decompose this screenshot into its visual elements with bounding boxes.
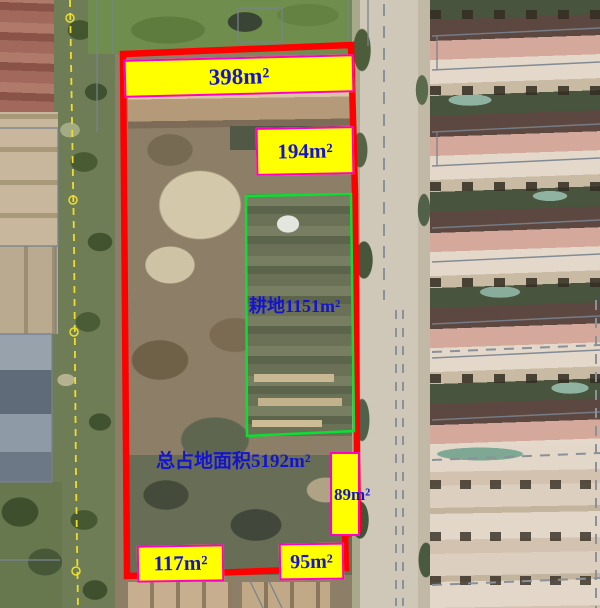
area-label-top-text: 398m² [208, 64, 269, 88]
area-label-upper-right: 194m² [256, 126, 355, 176]
road-dashed-lines [384, 4, 600, 608]
aerial-map-canvas[interactable]: 398m² 194m² 89m² 117m² 95m² 耕地1151m² 总占地… [0, 0, 600, 608]
area-label-bottom-left-text: 117m² [153, 553, 207, 575]
area-label-bottom-left: 117m² [137, 544, 225, 582]
area-label-top: 398m² [124, 54, 355, 98]
area-label-bottom-right: 95m² [279, 543, 345, 581]
total-area-text: 总占地面积5192m² [156, 452, 311, 471]
cultivated-area-text: 耕地1151m² [249, 297, 340, 315]
survey-marker-line [66, 0, 80, 608]
area-label-upper-right-text: 194m² [277, 140, 333, 162]
area-label-right: 89m² [330, 452, 360, 536]
area-label-bottom-right-text: 95m² [290, 551, 333, 572]
area-label-right-text: 89m² [334, 486, 370, 503]
